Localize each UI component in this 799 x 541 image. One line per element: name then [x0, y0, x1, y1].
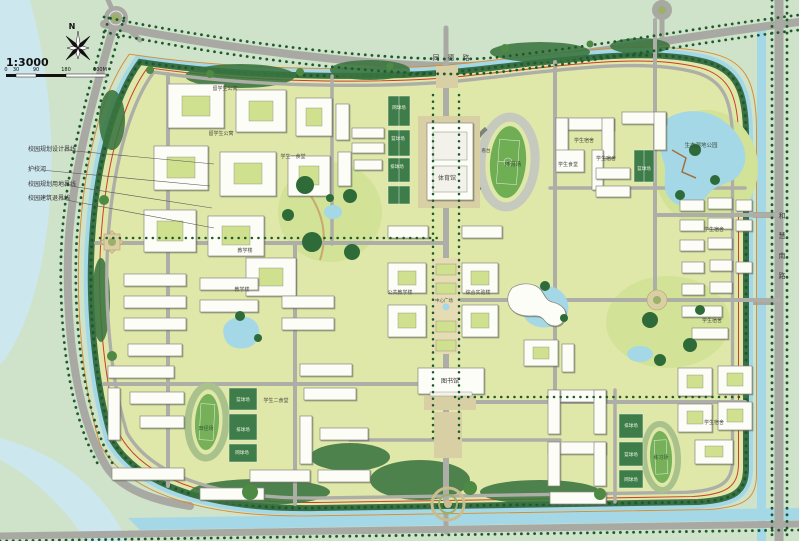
map-label: 篮球场 [624, 451, 638, 458]
map-label: 图书馆 [441, 377, 459, 385]
scale-tick-180: 180 [61, 67, 71, 73]
map-label: 学生食堂 [558, 161, 578, 168]
map-label: 综合实验楼 [465, 289, 490, 296]
map-label: 教学楼 [234, 286, 249, 293]
scale-tick-300m: 300M [93, 67, 107, 73]
map-label: 公共教学楼 [387, 289, 412, 296]
map-label: 学生宿舍 [704, 226, 724, 233]
map-label: 排球场 [624, 422, 638, 429]
map-label: 学生宿舍 [574, 137, 594, 144]
map-label: 练习场 [653, 454, 668, 461]
map-label: 网球场 [392, 104, 406, 111]
central-fountain [443, 304, 450, 311]
map-label: 篮球场 [236, 396, 250, 403]
south-axis-plaza [434, 412, 462, 458]
map-label: 学生二食堂 [263, 397, 288, 404]
north-gate-plaza [436, 66, 458, 88]
park-pond [324, 205, 342, 219]
scale-tick-30: 30 [13, 67, 19, 73]
map-label: 体育场 [505, 160, 522, 168]
callout-building-setback: 校园建筑退界线 [28, 194, 70, 202]
map-label: 篮球场 [391, 135, 405, 142]
campus-master-plan: 同德路和慧南路生态湿地公园学生宿舍学生宿舍学生食堂篮球场学生宿舍学生宿舍学生宿舍… [0, 0, 799, 541]
map-label: 篮球场 [637, 165, 651, 172]
map-label: 田径场 [198, 425, 213, 432]
west-gate-star-plaza [101, 231, 124, 254]
map-label: 看台 [482, 147, 491, 154]
scale-tick-90: 90 [33, 67, 39, 73]
map-label: 排球场 [390, 163, 404, 170]
scale-tick-0: 0 [4, 67, 7, 73]
campus-master-plan-map: 同德路和慧南路生态湿地公园学生宿舍学生宿舍学生食堂篮球场学生宿舍学生宿舍学生宿舍… [0, 0, 799, 541]
callout-land-boundary: 校园规划用地界线 [28, 180, 76, 188]
map-label: 生态湿地公园 [684, 141, 718, 149]
map-label: 网球场 [624, 476, 638, 483]
map-label: 学生一食堂 [280, 153, 305, 160]
map-label: 同德路 [433, 53, 478, 62]
gymnasium [418, 116, 480, 208]
map-label: 学生宿舍 [702, 317, 722, 324]
map-label: 网球场 [235, 449, 249, 456]
map-label: 留学生公寓 [212, 85, 237, 92]
activity-buildings [352, 128, 384, 170]
map-label: 中心广场 [435, 297, 453, 304]
map-label: 学生宿舍 [704, 419, 724, 426]
west-pond [223, 317, 259, 349]
map-label: 体育馆 [438, 174, 456, 182]
map-label: 留学生公寓 [208, 130, 233, 137]
map-label: 教学楼 [237, 247, 252, 254]
map-label: 排球场 [236, 426, 250, 433]
callout-design-boundary: 校园规划设计界线 [28, 145, 76, 153]
callout-moat: 护校河 [28, 165, 46, 173]
compass-north-label: N [69, 22, 76, 31]
map-label: 学生宿舍 [596, 155, 616, 162]
